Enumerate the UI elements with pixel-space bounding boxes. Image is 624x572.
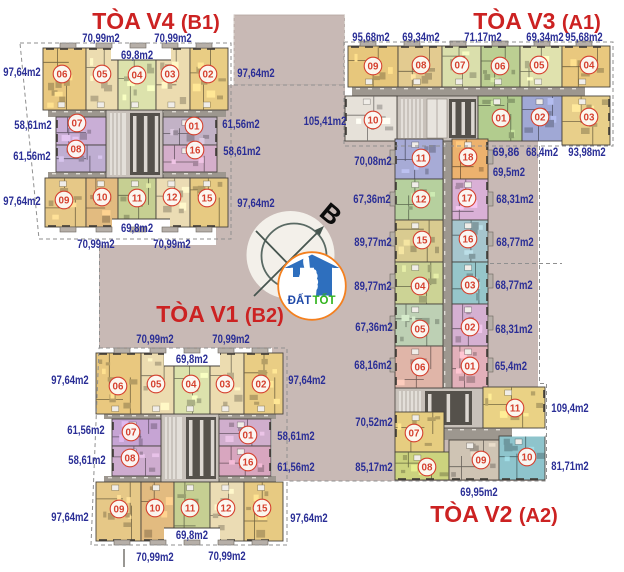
svg-text:67,36m2: 67,36m2 (355, 322, 392, 334)
svg-text:15: 15 (417, 235, 428, 246)
svg-text:03: 03 (220, 379, 231, 390)
svg-text:ĐẤT: ĐẤT (288, 294, 312, 307)
svg-text:18: 18 (463, 152, 474, 163)
svg-text:04: 04 (584, 60, 595, 71)
svg-text:97,64m2: 97,64m2 (288, 375, 325, 387)
svg-text:16: 16 (463, 234, 474, 245)
svg-text:69,8m2: 69,8m2 (121, 223, 153, 235)
svg-text:67,36m2: 67,36m2 (353, 194, 390, 206)
svg-text:109,4m2: 109,4m2 (551, 403, 588, 415)
svg-text:08: 08 (71, 144, 82, 155)
svg-text:70,99m2: 70,99m2 (153, 239, 190, 251)
svg-text:97,64m2: 97,64m2 (51, 512, 88, 524)
svg-text:70,99m2: 70,99m2 (154, 33, 191, 45)
svg-text:58,61m2: 58,61m2 (223, 146, 260, 158)
svg-text:07: 07 (72, 118, 83, 129)
svg-text:95,68m2: 95,68m2 (352, 32, 389, 44)
svg-text:09: 09 (476, 455, 487, 466)
svg-text:06: 06 (415, 362, 426, 373)
svg-text:105,41m2: 105,41m2 (304, 116, 347, 128)
svg-text:TÒA V3 (A1): TÒA V3 (A1) (473, 7, 601, 34)
svg-text:04: 04 (132, 70, 143, 81)
svg-text:10: 10 (150, 503, 161, 514)
svg-text:09: 09 (59, 195, 70, 206)
svg-text:69,8m2: 69,8m2 (176, 530, 208, 542)
svg-text:01: 01 (243, 430, 254, 441)
svg-text:07: 07 (409, 428, 420, 439)
svg-text:58,61m2: 58,61m2 (68, 455, 105, 467)
svg-text:04: 04 (415, 281, 426, 292)
svg-text:97,64m2: 97,64m2 (237, 198, 274, 210)
svg-text:58,61m2: 58,61m2 (277, 431, 314, 443)
svg-text:58,61m2: 58,61m2 (14, 120, 51, 132)
svg-text:68,77m2: 68,77m2 (496, 237, 533, 249)
svg-text:69,34m2: 69,34m2 (402, 32, 439, 44)
svg-text:05: 05 (151, 379, 162, 390)
svg-text:01: 01 (189, 121, 200, 132)
svg-text:11: 11 (416, 153, 427, 164)
svg-text:61,56m2: 61,56m2 (222, 119, 259, 131)
svg-text:97,64m2: 97,64m2 (3, 67, 40, 79)
svg-text:65,4m2: 65,4m2 (495, 361, 527, 373)
svg-text:11: 11 (132, 193, 143, 204)
svg-text:09: 09 (114, 504, 125, 515)
svg-text:06: 06 (57, 69, 68, 80)
svg-text:89,77m2: 89,77m2 (354, 237, 391, 249)
svg-text:12: 12 (221, 503, 232, 514)
svg-text:05: 05 (97, 69, 108, 80)
svg-text:01: 01 (496, 113, 507, 124)
svg-text:70,99m2: 70,99m2 (136, 552, 173, 564)
svg-text:89,77m2: 89,77m2 (354, 281, 391, 293)
svg-text:70,99m2: 70,99m2 (136, 334, 173, 346)
svg-text:61,56m2: 61,56m2 (67, 425, 104, 437)
svg-text:02: 02 (465, 322, 476, 333)
svg-text:02: 02 (256, 379, 267, 390)
svg-text:08: 08 (422, 462, 433, 473)
svg-text:03: 03 (465, 280, 476, 291)
svg-text:68,77m2: 68,77m2 (495, 280, 532, 292)
svg-text:70,08m2: 70,08m2 (354, 156, 391, 168)
svg-text:81,71m2: 81,71m2 (551, 461, 588, 473)
svg-text:69,95m2: 69,95m2 (460, 487, 497, 499)
svg-text:70,99m2: 70,99m2 (77, 239, 114, 251)
svg-text:08: 08 (416, 60, 427, 71)
svg-text:07: 07 (455, 60, 466, 71)
svg-text:15: 15 (202, 193, 213, 204)
svg-text:12: 12 (416, 194, 427, 205)
svg-text:03: 03 (165, 69, 176, 80)
svg-text:69,8m2: 69,8m2 (121, 50, 153, 62)
svg-text:01: 01 (465, 361, 476, 372)
svg-text:70,52m2: 70,52m2 (355, 417, 392, 429)
svg-text:15: 15 (257, 503, 268, 514)
svg-text:61,56m2: 61,56m2 (277, 462, 314, 474)
svg-text:97,64m2: 97,64m2 (51, 375, 88, 387)
svg-text:10: 10 (97, 192, 108, 203)
svg-text:12: 12 (167, 192, 178, 203)
svg-text:69,5m2: 69,5m2 (493, 167, 525, 179)
svg-text:02: 02 (203, 69, 214, 80)
svg-text:97,64m2: 97,64m2 (237, 68, 274, 80)
svg-text:TÒA V4 (B1): TÒA V4 (B1) (92, 7, 220, 34)
svg-text:68,31m2: 68,31m2 (496, 194, 533, 206)
svg-text:03: 03 (584, 112, 595, 123)
svg-text:85,17m2: 85,17m2 (355, 462, 392, 474)
svg-text:TÒA V1 (B2): TÒA V1 (B2) (156, 300, 284, 327)
svg-text:97,64m2: 97,64m2 (3, 196, 40, 208)
svg-text:08: 08 (125, 453, 136, 464)
svg-text:17: 17 (462, 193, 473, 204)
svg-text:68,31m2: 68,31m2 (495, 324, 532, 336)
svg-text:04: 04 (186, 379, 197, 390)
svg-text:TỐT: TỐT (313, 293, 336, 307)
svg-text:TÒA V2 (A2): TÒA V2 (A2) (430, 500, 558, 527)
svg-text:11: 11 (510, 403, 521, 414)
svg-text:09: 09 (368, 61, 379, 72)
svg-text:68,4m2: 68,4m2 (526, 147, 558, 159)
svg-text:69,86: 69,86 (493, 147, 520, 159)
svg-text:07: 07 (126, 427, 137, 438)
svg-text:93,98m2: 93,98m2 (568, 147, 605, 159)
svg-text:70,99m2: 70,99m2 (82, 33, 119, 45)
svg-text:97,64m2: 97,64m2 (290, 513, 327, 525)
svg-text:05: 05 (534, 60, 545, 71)
svg-text:02: 02 (535, 112, 546, 123)
svg-text:10: 10 (368, 115, 379, 126)
svg-text:16: 16 (190, 145, 201, 156)
svg-text:06: 06 (495, 61, 506, 72)
svg-text:68,16m2: 68,16m2 (354, 360, 391, 372)
svg-text:61,56m2: 61,56m2 (13, 151, 50, 163)
svg-text:11: 11 (185, 503, 196, 514)
svg-text:05: 05 (415, 324, 426, 335)
svg-text:69,8m2: 69,8m2 (176, 354, 208, 366)
svg-text:16: 16 (243, 457, 254, 468)
svg-text:70,99m2: 70,99m2 (208, 551, 245, 563)
svg-text:70,99m2: 70,99m2 (212, 334, 249, 346)
svg-text:06: 06 (113, 381, 124, 392)
svg-text:10: 10 (522, 452, 533, 463)
